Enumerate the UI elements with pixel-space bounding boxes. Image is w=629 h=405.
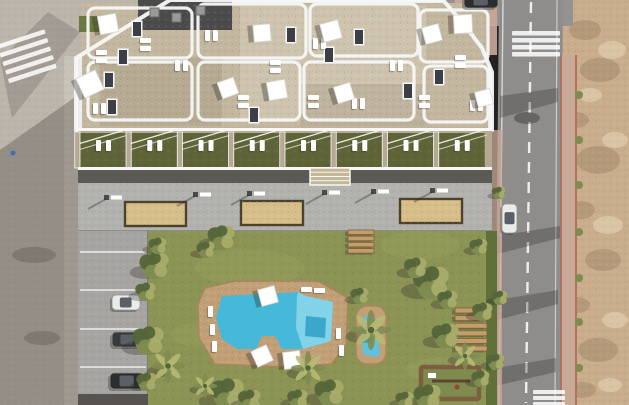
sun-lounger [455, 140, 460, 151]
sun-lounger [205, 30, 210, 41]
terrace-divider-wall [229, 132, 234, 168]
lower-patio-strip [78, 170, 492, 183]
sidewalk-bush [575, 364, 583, 372]
terrace-divider-wall [126, 132, 131, 168]
tree-shadow-left-road [24, 331, 60, 345]
sun-lounger [140, 38, 151, 43]
bush-foliage [142, 283, 150, 291]
ac-unit [196, 6, 205, 15]
sun-lounger [270, 68, 281, 73]
bush-foliage [483, 311, 492, 320]
bush-foliage [147, 381, 156, 390]
wood-step [348, 249, 374, 254]
bush-foliage [154, 238, 161, 245]
bench [254, 192, 265, 196]
sun-lounger [336, 328, 341, 339]
tree-shadow-left-road [12, 247, 56, 263]
bench [329, 191, 340, 195]
skylight [355, 30, 363, 44]
sun-lounger [147, 140, 152, 151]
bush-foliage [496, 361, 504, 369]
ac-unit [150, 8, 159, 17]
terrace-divider-wall [75, 132, 80, 168]
ac-unit [172, 13, 181, 22]
crosswalk-stripe [512, 45, 560, 50]
sidewalk-bush [575, 181, 583, 189]
bush-foliage [246, 390, 255, 399]
bush-foliage [324, 379, 336, 391]
crosswalk-stripe [512, 31, 560, 36]
sun-lounger [270, 60, 281, 65]
pool-water-step [305, 316, 326, 338]
wood-step [455, 338, 487, 343]
wood-step [348, 230, 374, 235]
car-windows [120, 298, 132, 308]
bush-foliage [356, 288, 363, 295]
bush-foliage [479, 246, 487, 254]
sun-lounger [308, 95, 319, 100]
bush-foliage [148, 339, 162, 353]
sun-lounger [301, 287, 312, 292]
sun-lounger [96, 140, 101, 151]
car-windows [505, 212, 515, 224]
playground-bench [428, 373, 436, 378]
sun-lounger [175, 60, 180, 71]
sidewalk-bush [575, 91, 583, 99]
sun-lounger [308, 103, 319, 108]
bush-foliage [425, 266, 439, 280]
crosswalk [533, 390, 565, 405]
sun-lounger [455, 63, 466, 68]
bush-foliage [154, 264, 167, 277]
sun-lounger [455, 55, 466, 60]
bush-foliage [412, 258, 421, 267]
terrace-bottom-wall [78, 167, 492, 170]
car-shadow-on-road [514, 112, 540, 124]
skylight [250, 108, 258, 122]
skylight [133, 22, 141, 36]
parking-end-dark-strip [78, 394, 148, 405]
bush-foliage [448, 299, 457, 308]
bush-foliage [492, 354, 499, 361]
sun-lounger [96, 50, 107, 55]
bush-foliage [206, 249, 214, 257]
sidewalk-bush [575, 318, 583, 326]
sun-lounger [419, 95, 430, 100]
sun-lounger [398, 60, 403, 71]
wood-step [455, 331, 487, 336]
bench [378, 190, 389, 194]
bush-foliage [423, 384, 434, 395]
sidewalk-bush [575, 274, 583, 282]
sun-lounger [212, 341, 217, 352]
sun-lounger [238, 95, 249, 100]
skylight [105, 73, 113, 87]
sun-lounger [314, 288, 325, 293]
bush-foliage [294, 390, 302, 398]
sun-lounger [238, 103, 249, 108]
palm-crown [203, 384, 207, 388]
sidewalk-bush [575, 136, 583, 144]
sun-lounger [93, 103, 98, 114]
sun-lounger [140, 46, 151, 51]
sun-lounger [419, 103, 430, 108]
bush-foliage [149, 252, 161, 264]
terrace-row [75, 129, 487, 168]
terrace-divider-wall [280, 132, 285, 168]
crosswalk-stripe [512, 52, 560, 57]
palm-crown [463, 354, 468, 359]
wood-step [348, 242, 374, 247]
sun-lounger [313, 38, 318, 49]
bush-foliage [441, 323, 452, 334]
sun-lounger [352, 140, 357, 151]
sun-lounger [390, 60, 395, 71]
bush-foliage [444, 291, 452, 299]
terrace-divider-wall [177, 132, 182, 168]
bush-foliage [499, 192, 505, 198]
bush-foliage [401, 392, 408, 399]
bush-foliage [329, 391, 342, 404]
sidewalk-bush [575, 228, 583, 236]
bush-foliage [496, 187, 501, 192]
sun-lounger [96, 58, 107, 63]
bush-foliage [500, 297, 507, 304]
crosswalk-stripe [512, 38, 560, 43]
sun-lounger [360, 98, 365, 109]
right-sidewalk [560, 55, 577, 405]
bush-foliage [202, 242, 209, 249]
terrace-divider-wall [382, 132, 387, 168]
bush-foliage [221, 236, 233, 248]
bench [437, 189, 448, 193]
skylight [119, 50, 127, 64]
terrace-divider-wall [434, 132, 439, 168]
bush-foliage [497, 291, 503, 297]
sun-lounger [404, 140, 409, 151]
bush-foliage [143, 373, 151, 381]
bush-foliage [360, 295, 368, 303]
terrace-top-parapet [78, 128, 492, 131]
palm-crown [368, 327, 375, 334]
skylight [404, 84, 412, 98]
sun-lounger [208, 306, 213, 317]
skylight [435, 70, 443, 84]
sun-lounger [250, 140, 255, 151]
wood-step [455, 323, 487, 328]
aerial-render-image [0, 0, 629, 405]
sun-lounger [213, 30, 218, 41]
bench [200, 193, 211, 197]
car-windows [474, 0, 488, 6]
crosswalk-stripe [533, 396, 565, 400]
sun-lounger [301, 140, 306, 151]
scene-svg [0, 0, 629, 405]
bush-foliage [416, 267, 426, 277]
sand-pit-texture [241, 201, 303, 225]
bench [111, 196, 122, 200]
bush-foliage [158, 245, 166, 253]
crosswalk-stripe [533, 390, 565, 394]
sun-lounger [352, 98, 357, 109]
sun-lounger [339, 345, 344, 356]
bush-foliage [481, 378, 489, 386]
sun-lounger [210, 324, 215, 335]
bush-foliage [143, 326, 156, 339]
skylight [287, 28, 295, 42]
skylight [108, 100, 116, 114]
wood-step [348, 236, 374, 241]
bush-foliage [477, 371, 484, 378]
bush-foliage [479, 303, 487, 311]
bush-foliage [445, 334, 457, 346]
palm-crown [165, 363, 171, 369]
sun-lounger [101, 103, 106, 114]
bush-foliage [475, 239, 482, 246]
street-sign [11, 151, 16, 156]
sun-lounger [199, 140, 204, 151]
sun-lounger [183, 60, 188, 71]
playground-toy [455, 385, 460, 390]
terrace-divider-wall [331, 132, 336, 168]
sand-pit-texture [400, 199, 462, 223]
palm-crown [305, 365, 311, 371]
bush-foliage [217, 225, 228, 236]
bush-foliage [146, 291, 155, 300]
bush-foliage [221, 378, 235, 392]
skylight [325, 48, 333, 62]
